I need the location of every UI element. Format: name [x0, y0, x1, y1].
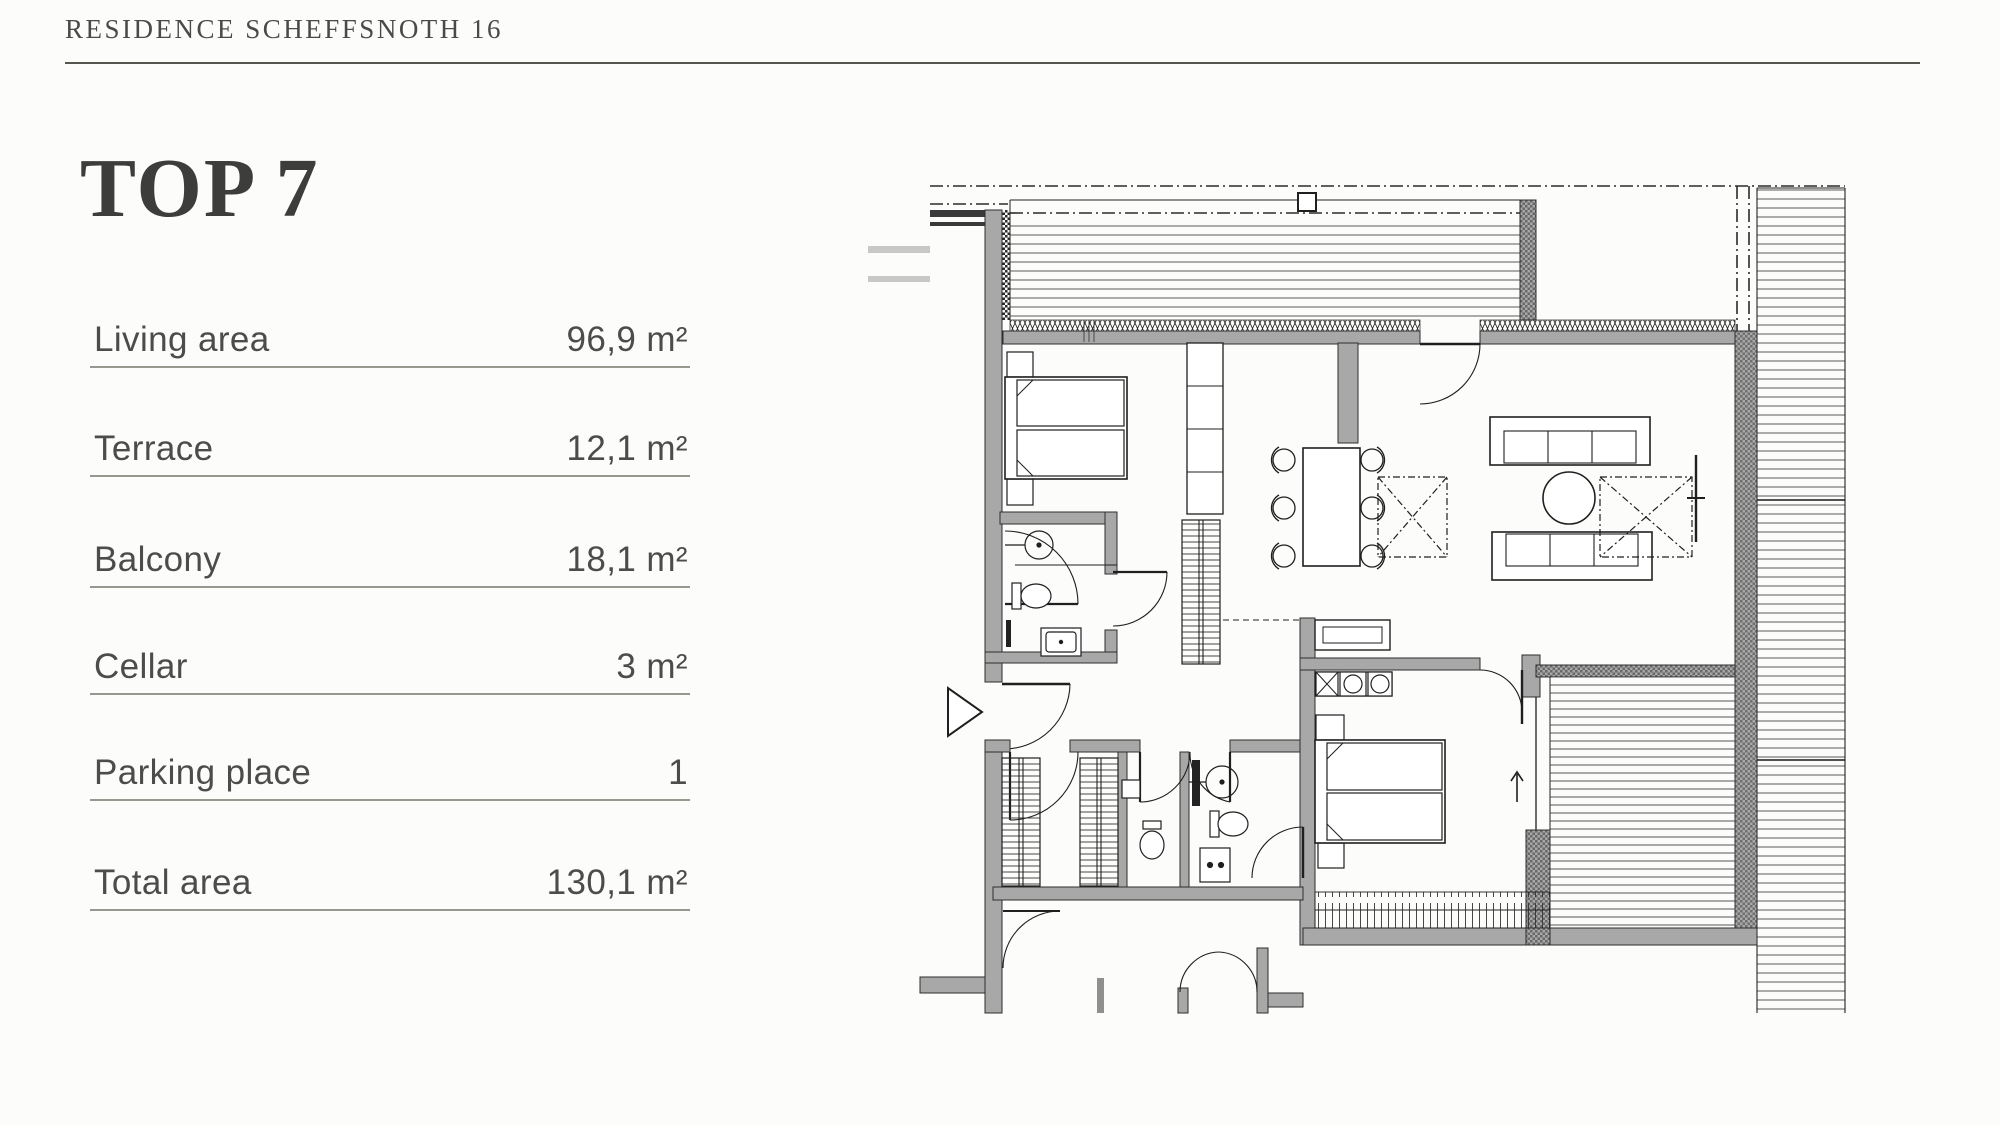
sofa-top [1490, 417, 1650, 465]
dining-sideboard-dashed [1378, 477, 1447, 557]
bottom-walkway-decking [1315, 892, 1550, 928]
spec-row-terrace: Terrace 12,1 m² [90, 415, 690, 477]
spec-label: Total area [90, 863, 252, 903]
living-room-terrace-door [1420, 344, 1480, 404]
spec-label: Living area [90, 320, 270, 360]
coffee-table-round [1543, 472, 1595, 524]
window-sill-band [1003, 320, 1735, 344]
spec-row-balcony: Balcony 18,1 m² [90, 526, 690, 588]
wc-fixtures [1122, 780, 1164, 859]
spec-row-parking: Parking place 1 [90, 739, 690, 801]
sofa-bottom [1492, 532, 1652, 580]
floor-lamp-icon [1687, 455, 1705, 542]
bathroom-1-fixtures [1005, 531, 1117, 656]
spec-label: Parking place [90, 753, 311, 793]
lower-hall-door [1003, 911, 1060, 968]
brochure-page: RESIDENCE SCHEFFSNOTH 16 TOP 7 Living ar… [0, 0, 2000, 1125]
wardrobe-hall [1182, 520, 1220, 664]
spec-value: 18,1 m² [567, 540, 690, 580]
dining-table [1303, 448, 1360, 566]
bedroom-2-bed [1315, 715, 1445, 868]
entrance-arrow-icon [948, 688, 982, 736]
spec-label: Cellar [90, 647, 188, 687]
spec-value: 12,1 m² [567, 429, 690, 469]
bathroom-2-bedroom-door [1252, 827, 1303, 878]
kitchen-island [1315, 620, 1390, 650]
right-outer-wall [1735, 331, 1757, 945]
spec-table: Living area 96,9 m² Terrace 12,1 m² Balc… [90, 0, 690, 1125]
spec-label: Balcony [90, 540, 221, 580]
spec-value: 3 m² [616, 647, 690, 687]
terrace-decking [1010, 193, 1536, 320]
spec-row-living-area: Living area 96,9 m² [90, 306, 690, 368]
direction-arrow-up-icon [1511, 772, 1523, 802]
right-walkway-decking [1757, 188, 1845, 1013]
spec-label: Terrace [90, 429, 214, 469]
bedroom-2-door [1480, 670, 1522, 724]
bathroom-1-door [1113, 572, 1167, 626]
lower-swing-door [1180, 952, 1257, 992]
balcony-decking [1526, 665, 1735, 945]
spec-value: 96,9 m² [567, 320, 690, 360]
floor-plan-drawing [860, 180, 1850, 1025]
wardrobe-strips [1002, 758, 1118, 886]
floor-plan [860, 180, 1850, 1025]
spec-value: 130,1 m² [547, 863, 690, 903]
spec-row-cellar: Cellar 3 m² [90, 633, 690, 695]
entrance-door [1002, 684, 1070, 749]
spec-row-total-area: Total area 130,1 m² [90, 849, 690, 911]
spec-value: 1 [668, 753, 690, 793]
kitchen-counter [1315, 672, 1392, 696]
bedroom-1-bed [1005, 352, 1127, 505]
bathroom-2-fixtures [1189, 760, 1248, 882]
shelf-column [1187, 343, 1223, 514]
